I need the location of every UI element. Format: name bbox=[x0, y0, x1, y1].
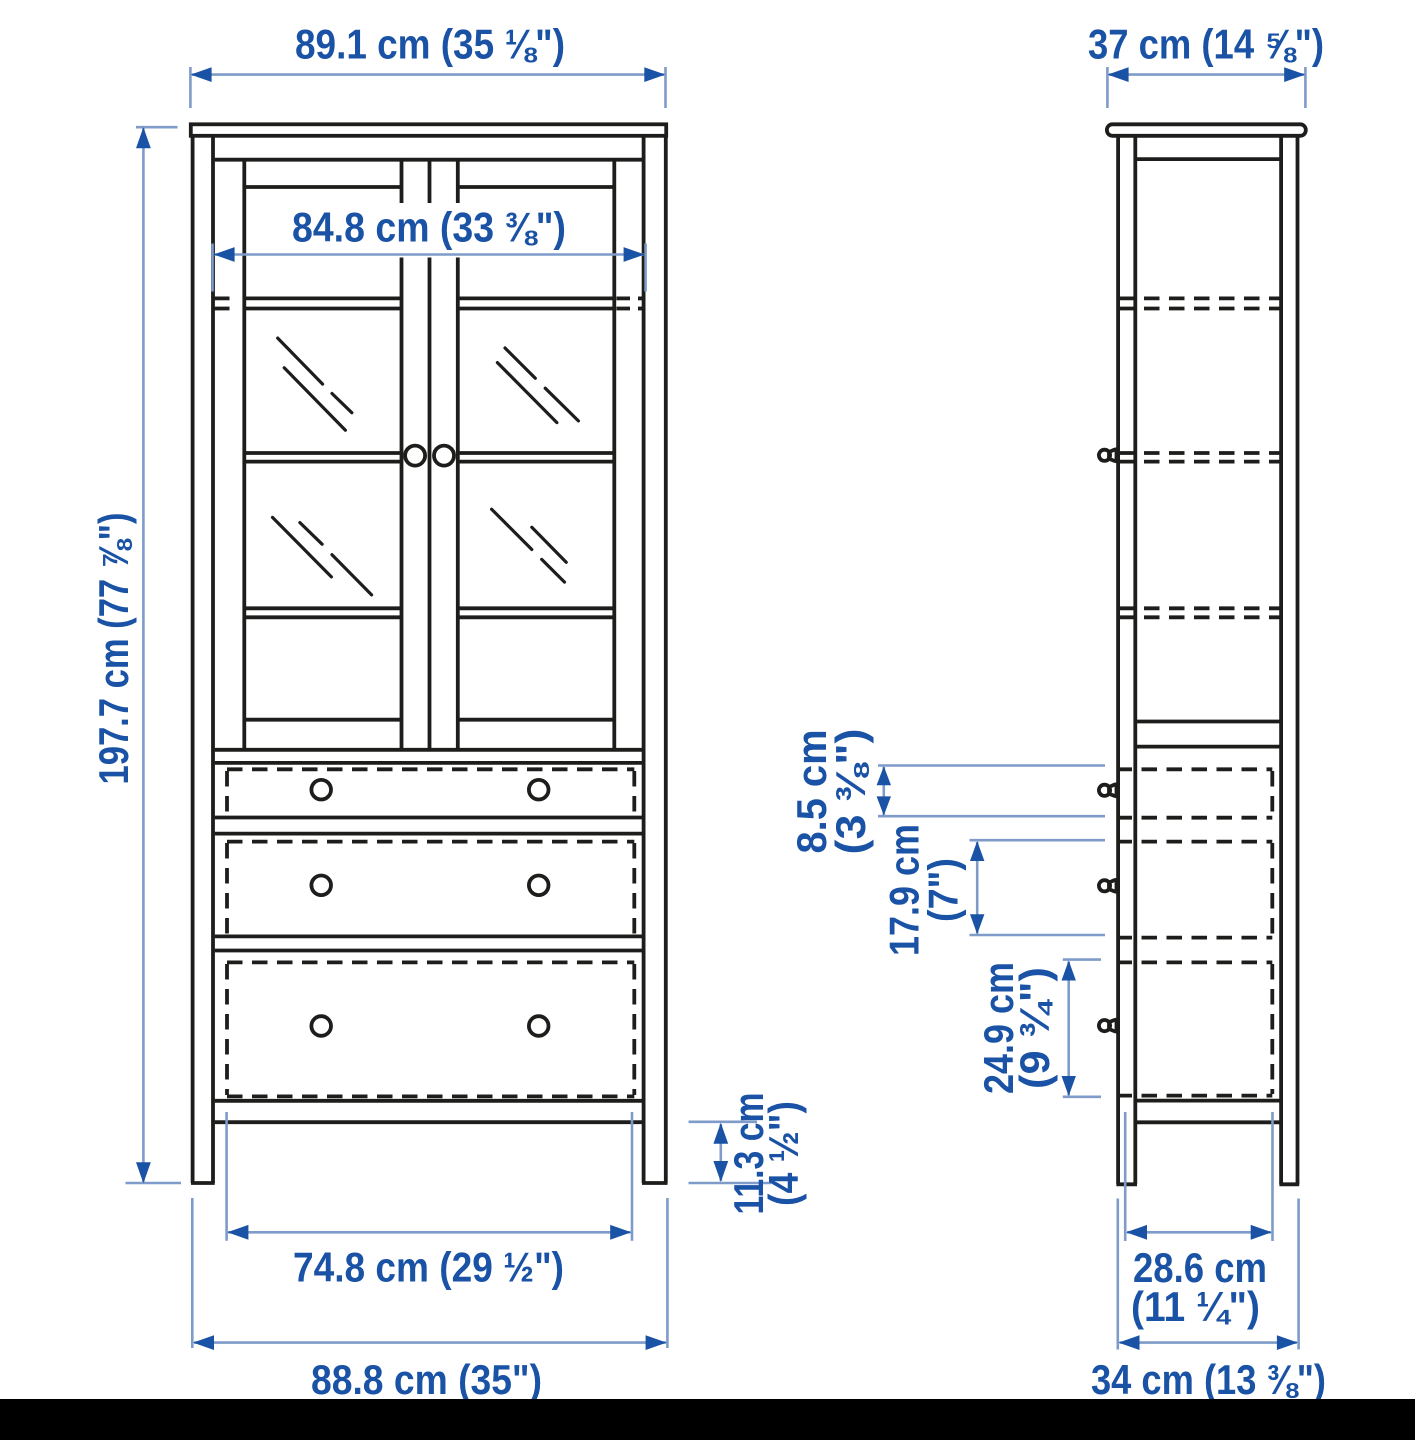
svg-text:89.1 cm (35 ⅛"): 89.1 cm (35 ⅛") bbox=[295, 21, 565, 68]
svg-text:84.8 cm (33 ⅜"): 84.8 cm (33 ⅜") bbox=[292, 204, 566, 251]
svg-text:88.8 cm (35"): 88.8 cm (35") bbox=[311, 1356, 542, 1403]
svg-text:74.8 cm (29 ½"): 74.8 cm (29 ½") bbox=[293, 1244, 564, 1291]
svg-text:37 cm (14 ⅝"): 37 cm (14 ⅝") bbox=[1088, 21, 1324, 68]
svg-text:(4 ½"): (4 ½") bbox=[760, 1101, 807, 1206]
svg-text:34 cm (13 ⅜"): 34 cm (13 ⅜") bbox=[1091, 1356, 1326, 1403]
svg-text:(11 ¼"): (11 ¼") bbox=[1131, 1283, 1260, 1330]
svg-text:(3 ⅜"): (3 ⅜") bbox=[827, 729, 874, 855]
svg-text:197.7 cm (77 ⅞"): 197.7 cm (77 ⅞") bbox=[90, 513, 137, 785]
svg-text:(7"): (7") bbox=[920, 858, 967, 922]
svg-text:(9 ¾"): (9 ¾") bbox=[1011, 967, 1058, 1089]
